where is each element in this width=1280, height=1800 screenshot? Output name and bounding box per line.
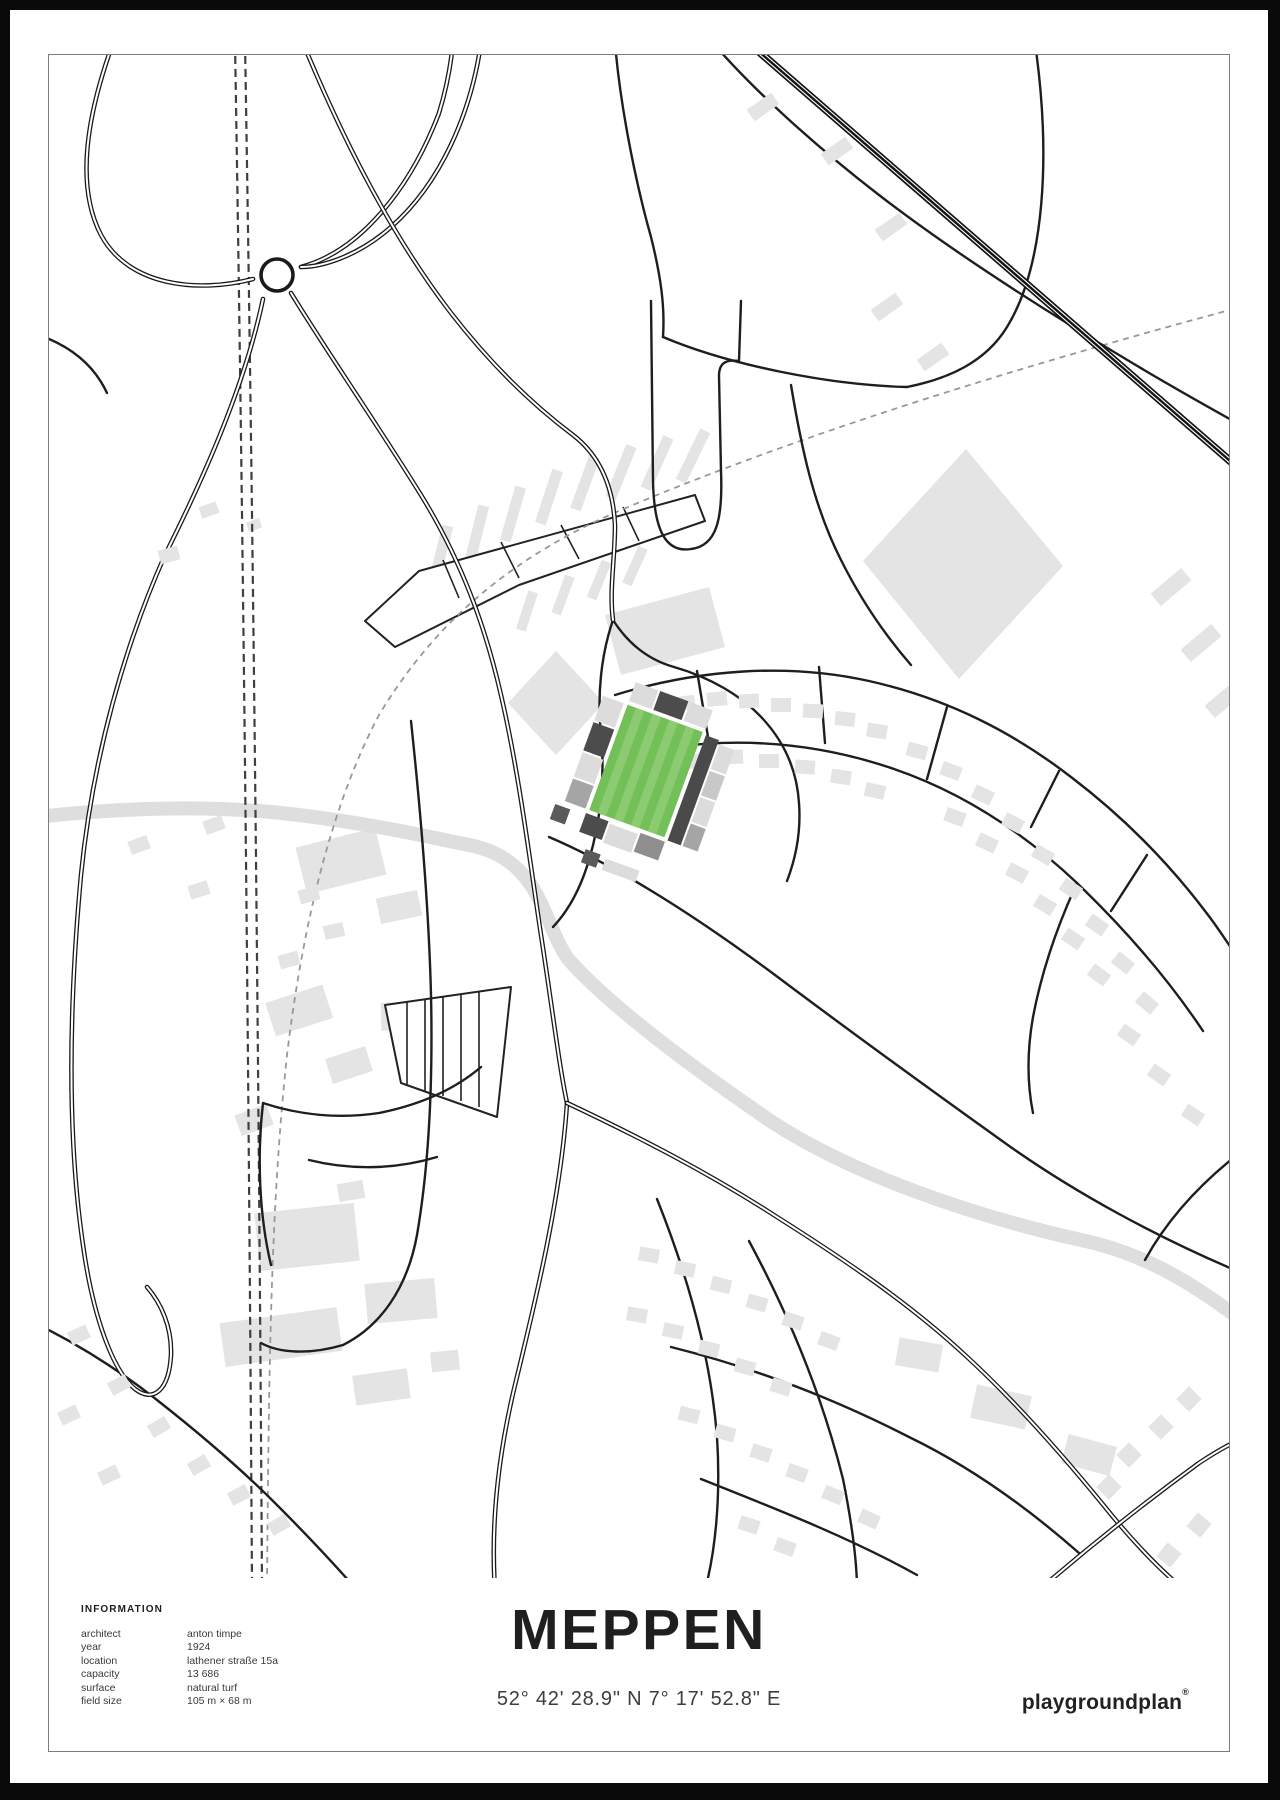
poster-footer: INFORMATION architect anton timpe year 1…	[49, 1578, 1229, 1751]
brand-logo: playgroundplan®	[1022, 1687, 1189, 1715]
city-map-svg	[49, 55, 1229, 1578]
poster-paper: INFORMATION architect anton timpe year 1…	[10, 10, 1268, 1783]
page-title: MEPPEN	[49, 1602, 1229, 1659]
building-footprints	[198, 449, 1117, 1476]
poster-photo: INFORMATION architect anton timpe year 1…	[0, 0, 1280, 1800]
info-label: capacity	[81, 1668, 187, 1681]
motorway	[749, 55, 1229, 467]
roundabout	[261, 259, 293, 291]
orchard-comb	[385, 987, 511, 1117]
footpath-dashed	[267, 307, 1229, 1578]
river	[49, 808, 1229, 1320]
brand-name: playgroundplan	[1022, 1691, 1182, 1714]
brand-registered-mark: ®	[1182, 1687, 1189, 1697]
info-value: 13 686	[187, 1668, 219, 1681]
city-map	[49, 55, 1229, 1578]
poster-plate: INFORMATION architect anton timpe year 1…	[48, 54, 1230, 1752]
info-row-capacity: capacity 13 686	[81, 1668, 278, 1681]
